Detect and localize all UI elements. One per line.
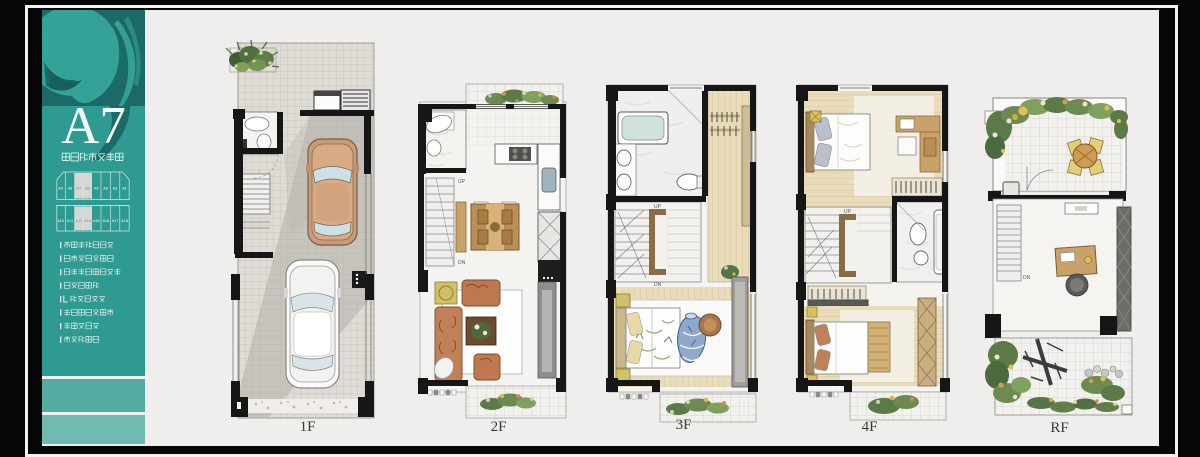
svg-text:DN: DN: [458, 260, 466, 266]
svg-text:UP: UP: [844, 209, 852, 215]
svg-text:DN: DN: [1023, 275, 1031, 281]
svg-text:UP: UP: [458, 179, 466, 185]
svg-text:UP: UP: [654, 204, 662, 210]
